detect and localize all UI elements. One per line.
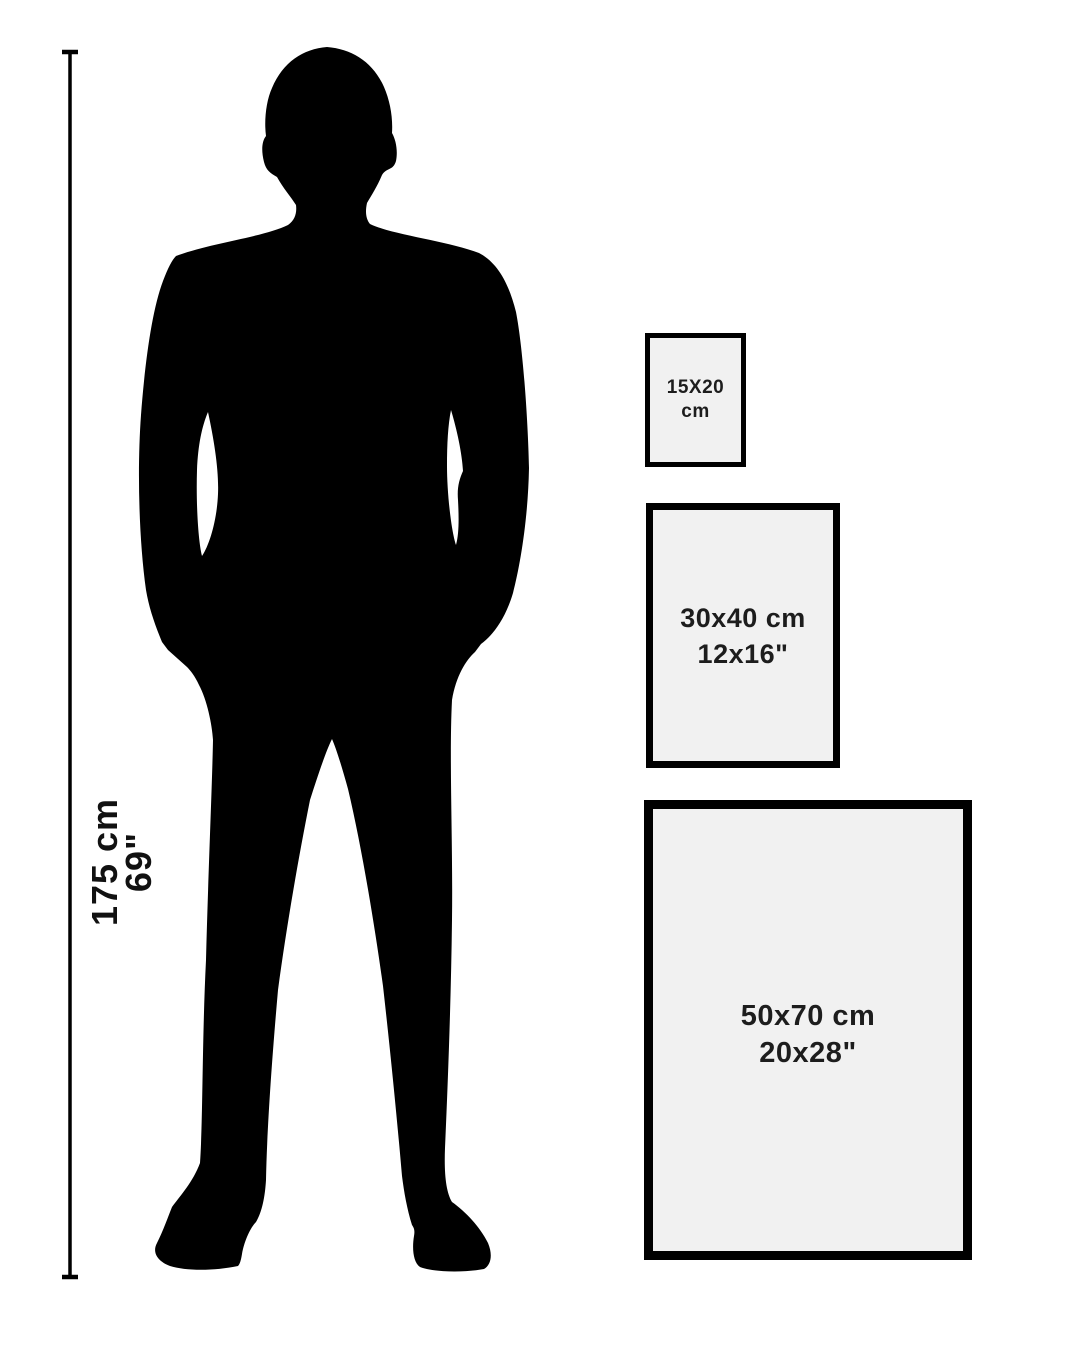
height-label: 175 cm 69"	[88, 798, 156, 926]
frame-50x70-label-cm: 50x70 cm	[741, 998, 876, 1035]
height-inches: 69"	[118, 832, 159, 892]
frame-30x40-label-in: 12x16"	[698, 636, 789, 672]
frame-30x40: 30x40 cm 12x16"	[646, 503, 840, 768]
frame-15x20-label: 15X20 cm	[650, 376, 741, 424]
frame-50x70-label-in: 20x28"	[759, 1035, 856, 1072]
man-silhouette	[139, 47, 529, 1271]
frame-30x40-label-cm: 30x40 cm	[680, 600, 806, 636]
frame-50x70: 50x70 cm 20x28"	[644, 800, 972, 1260]
size-guide-canvas: 175 cm 69" 15X20 cm 30x40 cm 12x16" 50x7…	[0, 0, 1080, 1350]
frame-15x20: 15X20 cm	[645, 333, 746, 467]
height-measure-line	[62, 52, 78, 1277]
